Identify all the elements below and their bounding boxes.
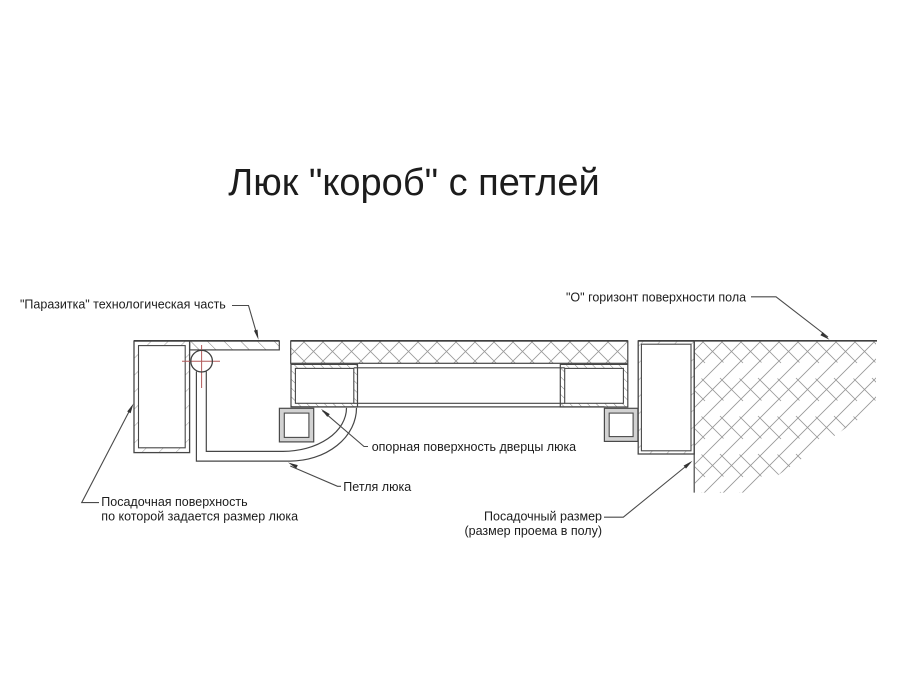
svg-text:по которой задается размер люк: по которой задается размер люка [101, 509, 298, 523]
svg-text:Посадочный размер: Посадочный размер [484, 510, 602, 524]
svg-text:Посадочная поверхность: Посадочная поверхность [101, 495, 247, 509]
svg-text:"Паразитка" технологическая ча: "Паразитка" технологическая часть [20, 297, 226, 311]
svg-text:"О" горизонт поверхности пола: "О" горизонт поверхности пола [566, 291, 746, 305]
svg-text:Люк "короб" с петлей: Люк "короб" с петлей [228, 162, 599, 204]
svg-text:опорная поверхность дверцы люк: опорная поверхность дверцы люка [372, 440, 576, 454]
svg-text:(размер проема в полу): (размер проема в полу) [464, 524, 602, 538]
svg-text:Петля люка: Петля люка [343, 480, 411, 494]
